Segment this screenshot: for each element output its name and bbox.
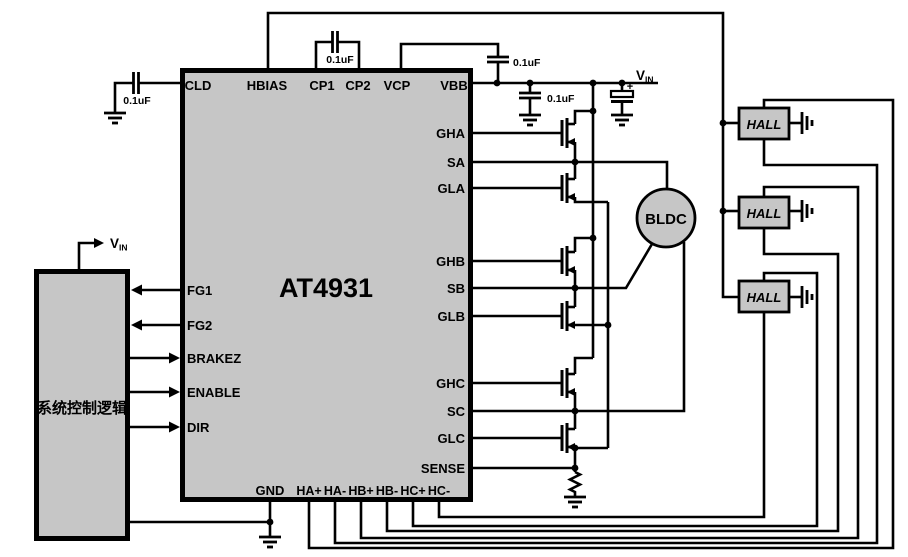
pin-label-hc-plus: HC+ xyxy=(400,484,425,498)
ic-title: AT4931 xyxy=(279,273,373,303)
pin-label-vbb: VBB xyxy=(440,78,467,93)
pin-label-hc-minus: HC- xyxy=(428,484,450,498)
hall3-minus-signal-wire xyxy=(439,312,764,517)
sa-phase-wire xyxy=(471,162,667,189)
vin-label-rail: VIN xyxy=(636,68,654,85)
vbb-capacitor xyxy=(519,93,541,98)
fg1-arrowhead xyxy=(131,285,142,296)
pin-label-ghc: GHC xyxy=(436,376,466,391)
pin-label-glb: GLB xyxy=(438,309,465,324)
pin-label-brakez: BRAKEZ xyxy=(187,351,241,366)
hall3-label: HALL xyxy=(747,290,782,305)
pin-label-ha-plus: HA+ xyxy=(296,484,321,498)
pin-label-fg2: FG2 xyxy=(187,318,212,333)
mosfet-b-low xyxy=(562,301,575,331)
pin-label-sa: SA xyxy=(447,155,466,170)
cld-cap-value: 0.1uF xyxy=(123,95,151,107)
hall1-label: HALL xyxy=(747,117,782,132)
schematic-canvas: AT4931 CLD HBIAS CP1 CP2 VCP VBB FG1 FG2… xyxy=(0,0,908,557)
cld-capacitor xyxy=(134,72,139,94)
control-vin-wire xyxy=(79,243,95,269)
vin-label-control: VIN xyxy=(110,236,128,253)
pin-label-gha: GHA xyxy=(436,126,466,141)
pin-label-cp2: CP2 xyxy=(345,78,370,93)
charge-pump-capacitor xyxy=(333,31,338,53)
vbb-cap-value: 0.1uF xyxy=(547,93,575,105)
cld-cap-ground xyxy=(104,113,126,123)
hall2-ground xyxy=(802,200,812,222)
pin-label-dir: DIR xyxy=(187,420,210,435)
brakez-arrowhead xyxy=(169,353,180,364)
bulk-cap-ground xyxy=(611,115,633,125)
pin-label-enable: ENABLE xyxy=(187,385,241,400)
sense-resistor xyxy=(570,472,580,497)
pin-label-gla: GLA xyxy=(438,181,466,196)
hall1-ground xyxy=(802,112,812,134)
enable-arrowhead xyxy=(169,387,180,398)
pin-label-ha-minus: HA- xyxy=(324,484,346,498)
fet-c-high-drain-lead xyxy=(575,358,593,374)
mosfet-a-low xyxy=(562,173,575,203)
vin-arrowhead xyxy=(94,238,104,248)
pin-label-hb-plus: HB+ xyxy=(348,484,373,498)
dir-arrowhead xyxy=(169,422,180,433)
vcp-wire xyxy=(401,44,498,71)
vcp-capacitor xyxy=(487,57,509,62)
pin-label-hb-minus: HB- xyxy=(376,484,398,498)
cp-cap-value: 0.1uF xyxy=(326,54,354,66)
pin-label-cp1: CP1 xyxy=(309,78,334,93)
mosfet-b-high xyxy=(562,246,575,276)
pin-label-ghb: GHB xyxy=(436,254,465,269)
pin-label-sc: SC xyxy=(447,404,466,419)
sc-phase-wire xyxy=(471,242,684,411)
bulk-cap-polarity: + xyxy=(627,81,633,93)
pin-label-fg1: FG1 xyxy=(187,283,212,298)
vcp-cap-value: 0.1uF xyxy=(513,57,541,69)
pin-label-glc: GLC xyxy=(438,431,466,446)
pin-label-sense: SENSE xyxy=(421,461,465,476)
pin-label-hbias: HBIAS xyxy=(247,78,288,93)
bldc-label: BLDC xyxy=(645,211,687,228)
fg2-arrowhead xyxy=(131,320,142,331)
sense-resistor-ground xyxy=(564,497,586,507)
schematic-page: AT4931 CLD HBIAS CP1 CP2 VCP VBB FG1 FG2… xyxy=(0,0,908,557)
pin-label-sb: SB xyxy=(447,281,465,296)
fet-a-low-source-lead xyxy=(575,197,608,202)
pin-label-vcp: VCP xyxy=(384,78,411,93)
mosfet-c-high xyxy=(562,368,575,398)
mosfet-a-high xyxy=(562,118,575,148)
pin-label-cld: CLD xyxy=(185,78,212,93)
hall2-label: HALL xyxy=(747,206,782,221)
vbb-cap-ground xyxy=(519,115,541,125)
fet-b-high-drain-lead xyxy=(575,238,593,252)
pin-label-gnd: GND xyxy=(256,483,285,498)
hall3-ground xyxy=(802,286,812,308)
control-logic-label: 系统控制逻辑 xyxy=(37,399,127,417)
gnd-pin-ground xyxy=(259,537,281,547)
